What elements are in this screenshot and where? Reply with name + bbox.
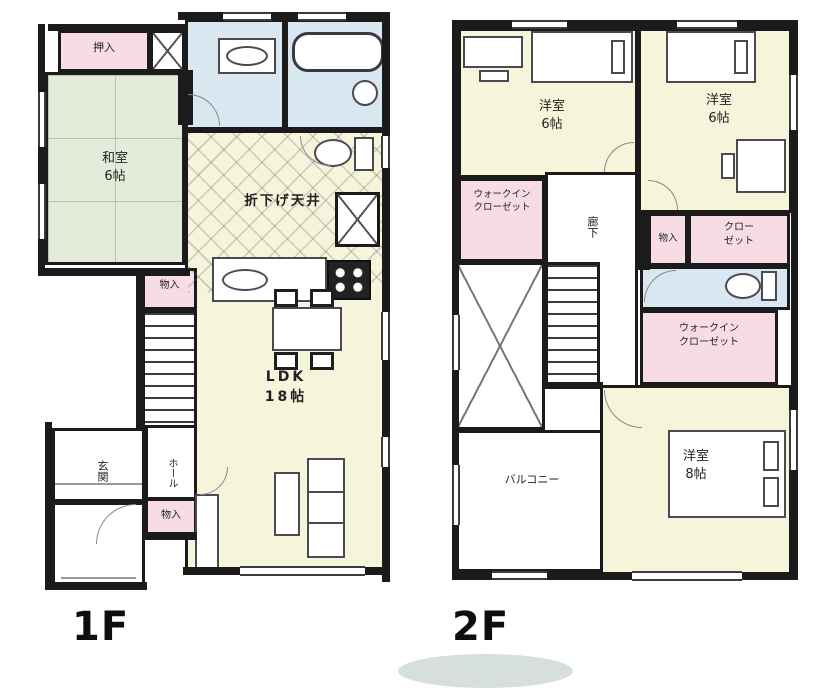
label-hall: ホール bbox=[158, 436, 178, 510]
floor2-plan: 洋室 6帖 洋室 6帖 ウォークイン クローゼット 廊下 物入 クロー ゼット … bbox=[452, 20, 798, 588]
label-genkan: 玄関 bbox=[88, 440, 110, 502]
label-wic-west: ウォークイン クローゼット bbox=[459, 188, 545, 215]
pillow bbox=[611, 40, 625, 74]
desk-chair bbox=[479, 70, 509, 82]
desk-chair bbox=[721, 153, 735, 179]
label-bedroom-nw: 洋室 6帖 bbox=[510, 98, 594, 134]
window bbox=[452, 465, 460, 525]
pillow bbox=[734, 40, 748, 74]
label-oshiire: 押入 bbox=[58, 40, 150, 55]
desk bbox=[463, 36, 523, 68]
dining-chair bbox=[274, 289, 298, 307]
tv-board bbox=[195, 494, 219, 574]
window bbox=[381, 312, 390, 360]
window bbox=[38, 92, 46, 147]
window bbox=[38, 184, 46, 239]
floor1-plan: 押入 和室 6帖 折下げ天井 LDK 18帖 物入 玄関 ホール 物入 bbox=[38, 12, 390, 590]
void-x-symbol bbox=[458, 265, 542, 427]
wall bbox=[178, 12, 390, 20]
window bbox=[492, 571, 547, 580]
open-void bbox=[455, 262, 545, 430]
sink-basin bbox=[226, 46, 268, 66]
window bbox=[452, 315, 460, 370]
label-wic-east: ウォークイン クローゼット bbox=[644, 322, 774, 350]
label-orisage-ceiling: 折下げ天井 bbox=[198, 192, 368, 211]
label-closet: クロー ゼット bbox=[692, 221, 786, 249]
window bbox=[789, 75, 798, 130]
wall bbox=[38, 268, 190, 276]
sofa bbox=[307, 458, 345, 558]
label-storage-stairs: 物入 bbox=[142, 279, 197, 293]
window bbox=[240, 566, 365, 576]
wall bbox=[48, 24, 185, 31]
pillow bbox=[763, 441, 779, 471]
bed bbox=[531, 31, 633, 83]
wall bbox=[452, 20, 798, 28]
wall bbox=[136, 268, 144, 430]
stairs-2f bbox=[545, 262, 600, 388]
wall bbox=[638, 210, 650, 270]
bed bbox=[666, 31, 756, 83]
bathtub bbox=[292, 32, 384, 72]
room-balcony bbox=[455, 430, 605, 572]
floorplan-page: { "floor1": { "caption": "1F", "rooms": … bbox=[0, 0, 828, 673]
stairs-1f bbox=[142, 310, 197, 428]
wall bbox=[45, 422, 52, 590]
bath-basin bbox=[352, 80, 378, 106]
watermark-swoosh bbox=[398, 654, 573, 688]
dining-chair bbox=[310, 289, 334, 307]
window bbox=[223, 12, 271, 21]
label-bedroom-ne: 洋室 6帖 bbox=[680, 92, 758, 128]
label-hallway: 廊下 bbox=[578, 198, 600, 256]
label-ldk: LDK 18帖 bbox=[230, 368, 342, 407]
label-storage-hall: 物入 bbox=[145, 509, 197, 523]
label-washitsu: 和室 6帖 bbox=[70, 150, 160, 186]
toilet-bowl bbox=[725, 273, 761, 299]
floor2-caption: 2F bbox=[452, 604, 509, 650]
window bbox=[381, 437, 390, 467]
label-bedroom-south: 洋室 8帖 bbox=[670, 448, 722, 484]
label-balcony: バルコニー bbox=[477, 472, 587, 487]
pillow bbox=[763, 477, 779, 507]
toilet-tank bbox=[761, 271, 777, 301]
porch-step-line bbox=[61, 577, 136, 579]
window bbox=[677, 20, 737, 29]
label-storage-2f: 物入 bbox=[648, 232, 688, 245]
window bbox=[789, 410, 798, 470]
wall bbox=[382, 12, 390, 582]
window bbox=[298, 12, 346, 21]
wall bbox=[545, 382, 603, 389]
floor1-caption: 1F bbox=[72, 604, 129, 650]
window bbox=[632, 571, 742, 581]
kitchen-sink bbox=[222, 269, 268, 291]
dining-table bbox=[272, 307, 342, 351]
toilet-tank bbox=[354, 137, 374, 171]
room-bathroom bbox=[285, 19, 390, 130]
shaft-x-symbol bbox=[150, 30, 185, 72]
coffee-table bbox=[274, 472, 300, 536]
desk bbox=[736, 139, 786, 193]
wall bbox=[145, 532, 197, 540]
window bbox=[512, 20, 567, 29]
wall bbox=[45, 582, 147, 590]
window bbox=[381, 136, 390, 168]
